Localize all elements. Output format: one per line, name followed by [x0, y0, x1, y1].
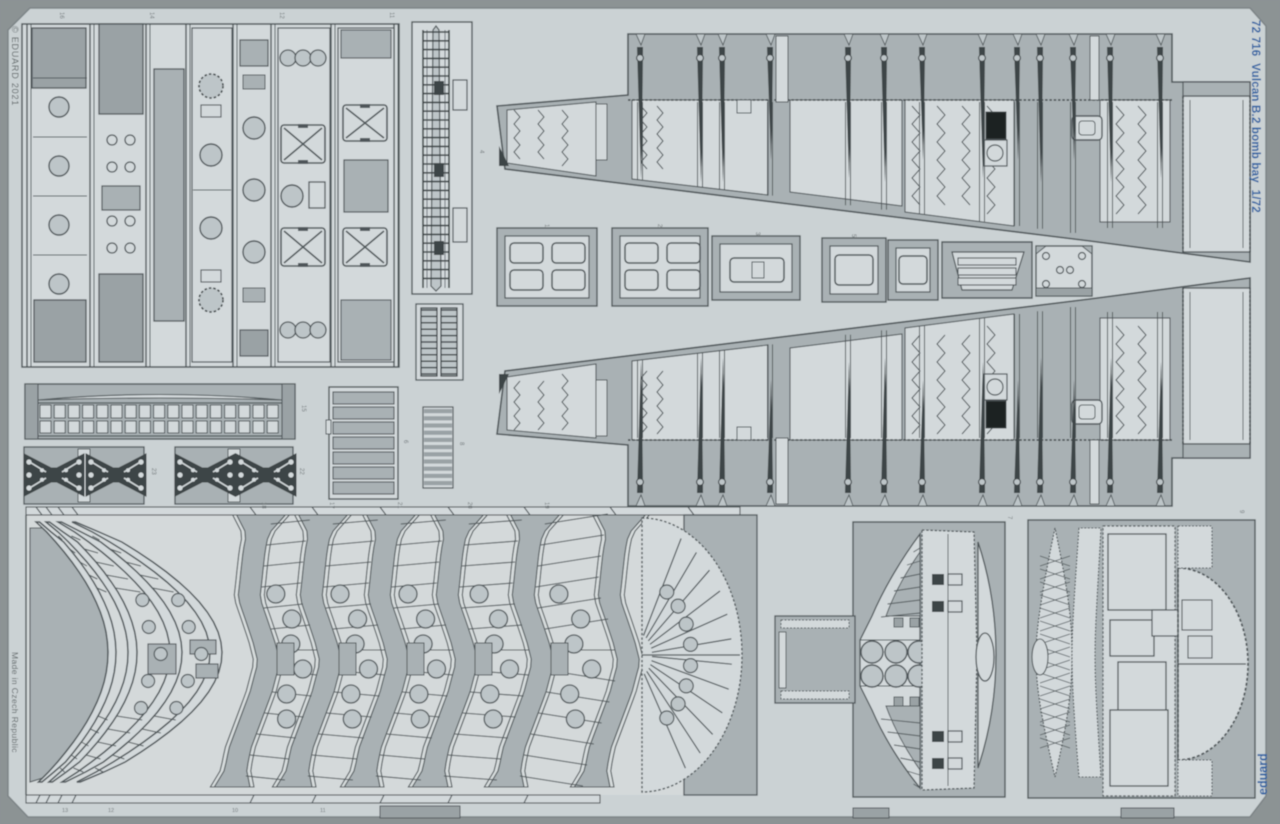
svg-text:eduard: eduard — [1256, 753, 1270, 795]
svg-text:13: 13 — [62, 808, 68, 814]
svg-text:23: 23 — [150, 468, 156, 475]
svg-text:21: 21 — [396, 502, 402, 509]
svg-text:© EDUARD 2021: © EDUARD 2021 — [10, 26, 20, 106]
svg-text:11: 11 — [388, 12, 394, 19]
svg-text:16: 16 — [58, 12, 64, 19]
svg-text:12: 12 — [278, 12, 284, 19]
svg-text:10: 10 — [232, 808, 238, 814]
svg-text:15: 15 — [300, 405, 306, 412]
svg-text:72 716 Vulcan B.2 bomb bay 1: 72 716 Vulcan B.2 bomb bay 1/72 — [1249, 20, 1261, 213]
svg-text:14: 14 — [148, 12, 154, 19]
svg-text:Made in Czech Republic: Made in Czech Republic — [10, 652, 20, 753]
svg-text:20: 20 — [466, 502, 472, 509]
svg-text:17: 17 — [328, 502, 334, 509]
svg-text:19: 19 — [543, 502, 549, 509]
svg-text:11: 11 — [320, 808, 326, 814]
svg-text:22: 22 — [298, 468, 304, 475]
svg-text:18: 18 — [260, 502, 266, 509]
svg-text:12: 12 — [108, 808, 114, 814]
